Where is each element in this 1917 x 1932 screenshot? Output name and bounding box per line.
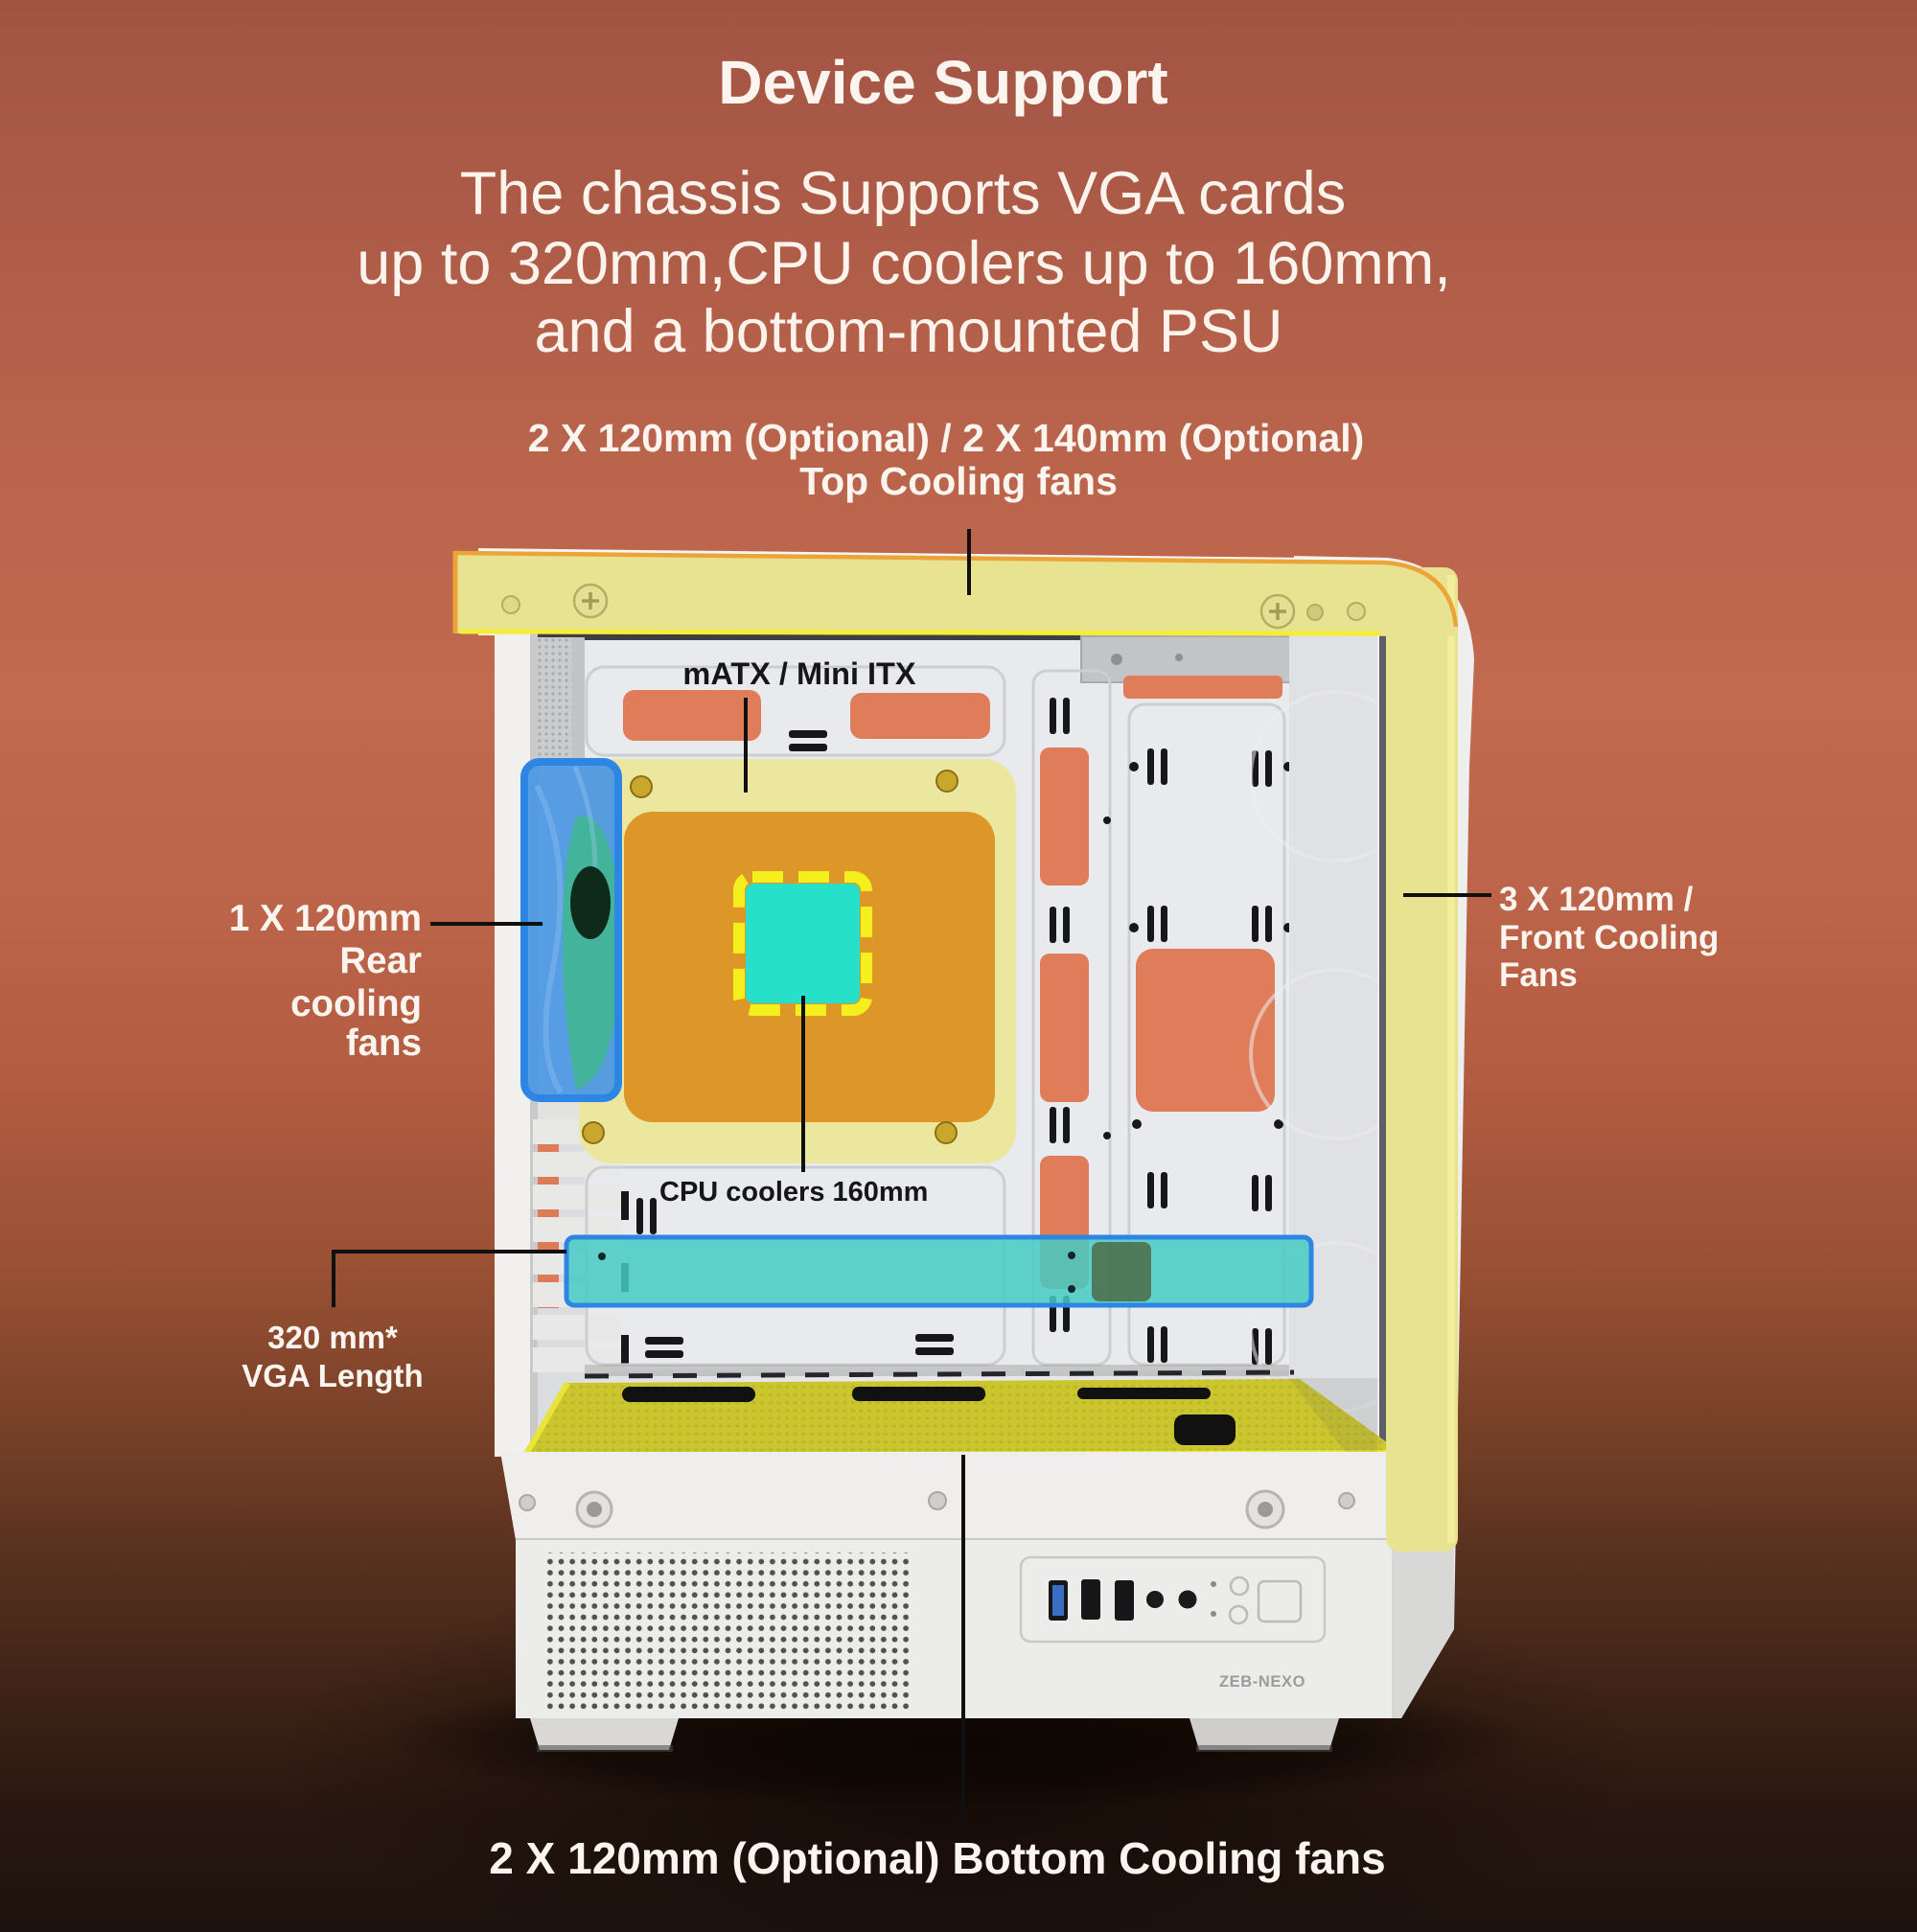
svg-text:ZEB-NEXO: ZEB-NEXO [1219,1673,1305,1690]
svg-text:mATX / Mini ITX: mATX / Mini ITX [682,656,915,691]
svg-text:2 X 120mm (Optional) / 2 X 140: 2 X 120mm (Optional) / 2 X 140mm (Option… [528,416,1365,460]
svg-text:Device Support: Device Support [718,48,1167,117]
svg-text:Rear: Rear [339,940,422,981]
svg-text:320 mm*: 320 mm* [267,1320,398,1355]
svg-text:The chassis Supports VGA cards: The chassis Supports VGA cards [460,160,1346,227]
svg-text:CPU coolers 160mm: CPU coolers 160mm [659,1177,928,1207]
svg-text:1 X 120mm: 1 X 120mm [229,898,422,939]
svg-text:VGA Length: VGA Length [242,1358,423,1393]
svg-text:Fans: Fans [1499,956,1578,994]
svg-text:up to 320mm,CPU coolers up to: up to 320mm,CPU coolers up to 160mm, [357,230,1451,297]
svg-text:2 X 120mm (Optional) Bottom Co: 2 X 120mm (Optional) Bottom Cooling fans [489,1833,1385,1883]
svg-text:Front Cooling: Front Cooling [1499,919,1719,956]
svg-text:Top Cooling fans: Top Cooling fans [799,459,1118,503]
svg-text:and a bottom-mounted PSU: and a bottom-mounted PSU [535,298,1283,365]
svg-text:3 X 120mm /: 3 X 120mm / [1499,881,1694,918]
svg-text:fans: fans [346,1023,422,1064]
svg-text:cooling: cooling [290,983,422,1024]
